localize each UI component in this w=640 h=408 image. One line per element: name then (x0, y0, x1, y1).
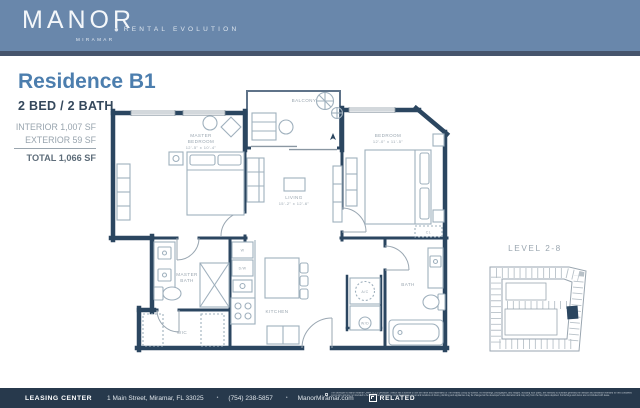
header-stripe (0, 51, 640, 56)
label-master-bedroom: MASTER (190, 133, 212, 138)
total-sf: TOTAL 1,066 SF (14, 152, 96, 165)
footer-phone: (754) 238-5857 (228, 395, 272, 402)
area-stats: INTERIOR 1,007 SF EXTERIOR 59 SF TOTAL 1… (14, 121, 96, 165)
label-master-bath: MASTER (176, 272, 198, 277)
label-wic: WIC (177, 330, 187, 335)
bedroom-furniture (346, 134, 444, 237)
label-balcony: BALCONY (292, 98, 317, 103)
north-arrow-icon (330, 133, 336, 140)
label-bath: BATH (401, 282, 415, 287)
flyer-page: MANOR MIRAMAR ● RENTAL EVOLUTION Residen… (0, 0, 640, 408)
footer-disclaimer: The developer is Manor Miramar Owner, LL… (331, 392, 632, 397)
label-bedroom: BEDROOM (375, 133, 402, 138)
keyplan-building (490, 267, 586, 351)
interior-walls (139, 108, 447, 348)
footer-separator: • (286, 395, 288, 401)
master-bedroom-furniture (117, 116, 244, 220)
label-dishwasher: D/W (239, 267, 247, 271)
keyplan-level-label: LEVEL 2-8 (508, 244, 562, 253)
keyplan: LEVEL 2-8 (478, 238, 602, 360)
label-closet: CL (426, 231, 431, 235)
keyplan-unit-highlight (567, 306, 579, 320)
header-bar: MANOR MIRAMAR ● RENTAL EVOLUTION (0, 0, 640, 51)
living-furniture (247, 158, 342, 222)
stats-divider (14, 148, 96, 149)
bath-fixtures (389, 248, 445, 345)
tagline-text: RENTAL EVOLUTION (124, 26, 240, 33)
disclaimer-icon (325, 393, 328, 396)
label-washer: W (241, 249, 245, 253)
footer-bar: LEASING CENTER 1 Main Street, Miramar, F… (0, 388, 640, 408)
label-master-bath-2: BATH (180, 278, 194, 283)
floorplan-drawing: MASTER BEDROOM 12'-5" x 10'-4" BEDROOM 1… (96, 80, 468, 376)
leasing-center-label: LEASING CENTER (25, 395, 92, 402)
footer-separator: • (217, 395, 219, 401)
brand-tagline: ● RENTAL EVOLUTION (114, 26, 239, 33)
kitchen-fixtures (230, 240, 308, 344)
furniture (117, 93, 445, 347)
brand-sub-label: MIRAMAR (76, 37, 115, 42)
disclaimer-wrap: The developer is Manor Miramar Owner, LL… (331, 392, 633, 407)
label-living: LIVING (285, 195, 302, 200)
tagline-dot-icon: ● (114, 27, 119, 33)
label-bedroom-dims: 12'-0" x 11'-5" (373, 139, 403, 144)
balcony-slider (251, 145, 337, 152)
label-kitchen: KITCHEN (266, 309, 289, 314)
label-wd: W/D (361, 322, 369, 326)
label-living-dims: 15'-2" x 12'-6" (279, 201, 310, 206)
label-ac: A/C (361, 290, 368, 294)
exterior-sf: EXTERIOR 59 SF (14, 134, 96, 147)
label-master-bedroom-2: BEDROOM (188, 139, 215, 144)
interior-sf: INTERIOR 1,007 SF (14, 121, 96, 134)
footer-address: 1 Main Street, Miramar, FL 33025 (107, 395, 204, 402)
label-master-bedroom-dims: 12'-5" x 10'-4" (186, 145, 217, 150)
